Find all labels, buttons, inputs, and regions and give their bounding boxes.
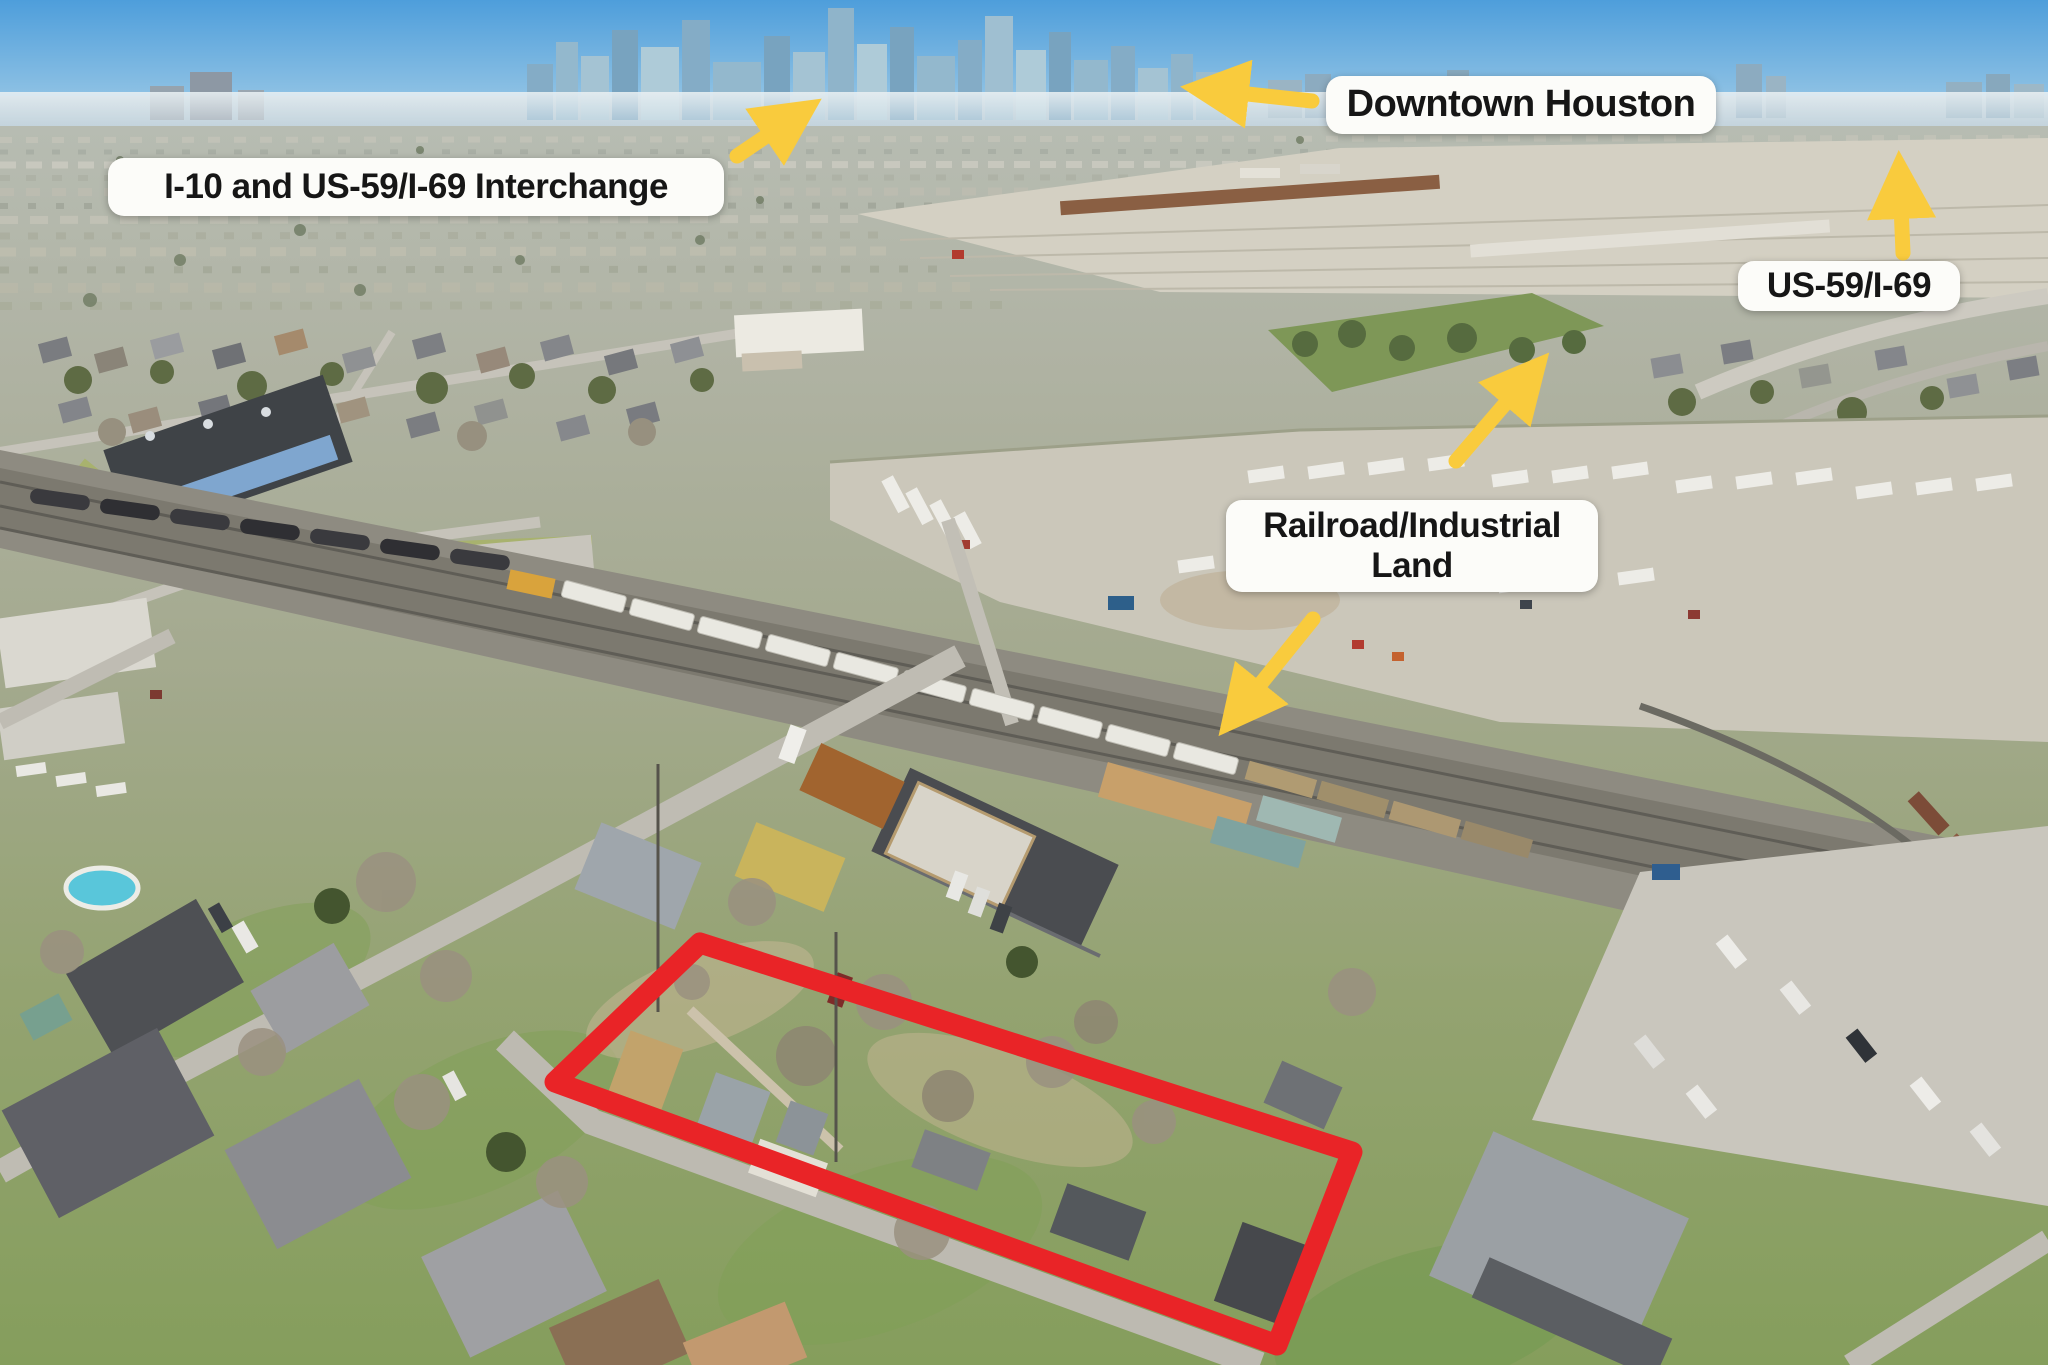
label-us59-i69: US-59/I-69 [1738, 261, 1960, 311]
highway-arrow-icon [1900, 181, 1903, 253]
label-downtown-houston: Downtown Houston [1326, 76, 1716, 134]
label-railroad-industrial-land: Railroad/Industrial Land [1226, 500, 1598, 592]
label-railroad-line2: Land [1371, 546, 1453, 586]
swimming-pool [66, 868, 138, 908]
label-railroad-line1: Railroad/Industrial [1263, 506, 1561, 546]
label-interchange: I-10 and US-59/I-69 Interchange [108, 158, 724, 216]
annotated-aerial-photo: I-10 and US-59/I-69 Interchange Downtown… [0, 0, 2048, 1365]
